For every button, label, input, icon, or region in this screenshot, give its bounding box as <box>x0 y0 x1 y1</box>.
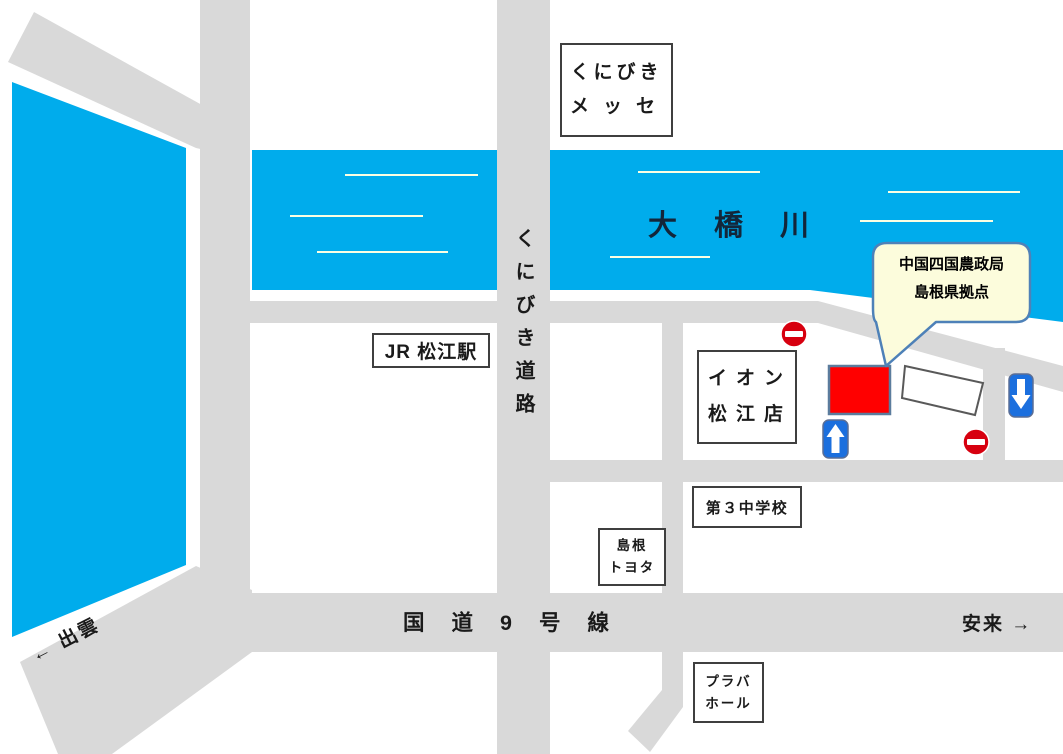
shimane-toyota-label-line1: 島根 <box>617 535 648 557</box>
daisan-junior-high-label: 第３中学校 <box>706 497 789 518</box>
box-kunibiki-messe: くにびき メッセ <box>560 43 673 137</box>
kunibiki-messe-label-line2: メッセ <box>564 90 669 124</box>
box-shimane-toyota: 島根 トヨタ <box>598 528 666 586</box>
no-entry-icon <box>963 429 989 455</box>
box-aeon-matsue: イオン 松江店 <box>697 350 797 444</box>
box-plava-hall: プラバ ホール <box>693 662 764 723</box>
box-jr-matsue-station: JR 松江駅 <box>372 333 490 368</box>
destination-callout-line1: 中国四国農政局 <box>876 251 1027 279</box>
jr-matsue-station-label: JR 松江駅 <box>385 337 478 364</box>
one-way-down-arrow-icon <box>1009 374 1033 417</box>
aeon-matsue-label-line1: イオン <box>702 361 792 397</box>
route9-label: 国道9号線 <box>403 606 636 637</box>
aeon-matsue-label-line2: 松江店 <box>702 397 792 433</box>
shimane-toyota-label-line2: トヨタ <box>609 557 656 579</box>
lake-water <box>12 82 186 637</box>
plava-hall-label-line1: プラバ <box>705 671 751 693</box>
road-west-vertical <box>200 0 250 652</box>
no-entry-icon <box>781 321 807 347</box>
building-outline <box>902 366 983 415</box>
box-daisan-junior-high: 第３中学校 <box>692 486 802 528</box>
kunibiki-road-label: くにびき道路 <box>504 228 542 448</box>
direction-yasugi-label: 安来 → <box>962 609 1032 636</box>
road-route9 <box>250 593 1063 652</box>
destination-marker <box>829 366 890 414</box>
destination-callout: 中国四国農政局 島根県拠点 <box>876 251 1027 307</box>
access-map: くにびき メッセ JR 松江駅 イオン 松江店 第３中学校 島根 トヨタ プラバ… <box>0 0 1063 754</box>
kunibiki-messe-label-line1: くにびき <box>570 56 662 90</box>
ohashi-river-label: 大橋川 <box>648 202 846 244</box>
destination-callout-line2: 島根県拠点 <box>876 279 1027 307</box>
one-way-up-arrow-icon <box>823 420 848 458</box>
plava-hall-label-line2: ホール <box>705 693 752 715</box>
